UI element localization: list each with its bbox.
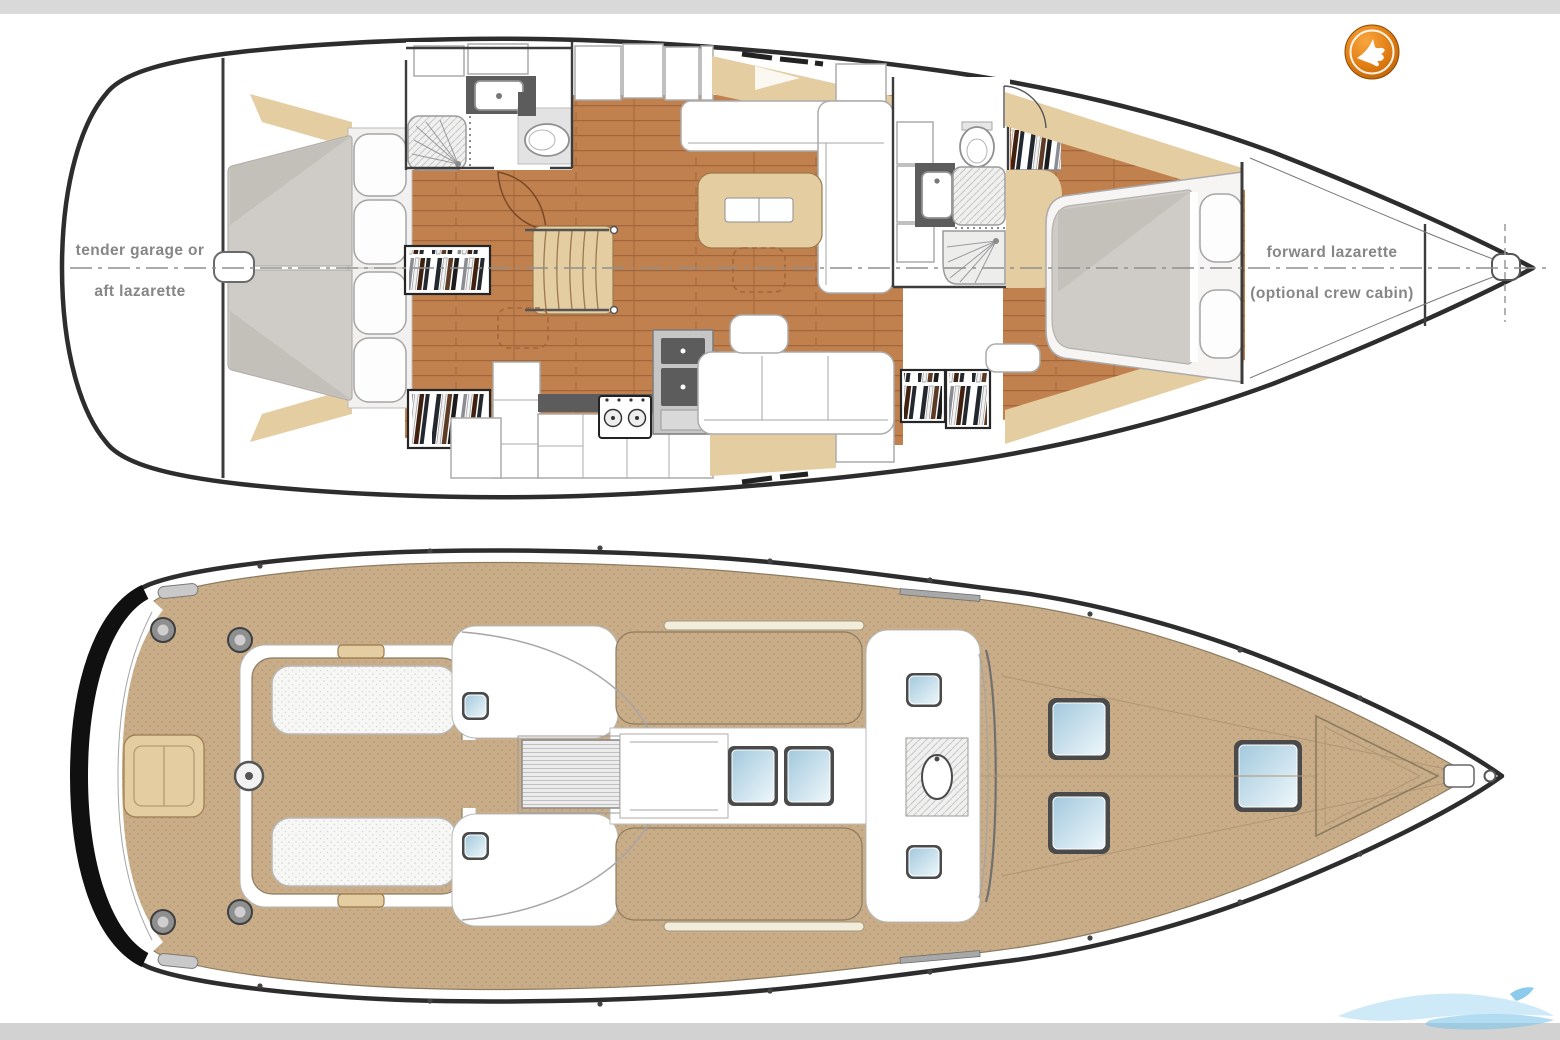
stool	[730, 315, 788, 353]
pillow	[354, 200, 406, 264]
forestay-fitting	[1485, 771, 1496, 782]
companionway-slide	[522, 740, 620, 808]
pillow	[354, 272, 406, 334]
hatch	[462, 832, 489, 860]
top-gray-bar	[0, 0, 1560, 14]
hatch	[462, 692, 489, 720]
bow-roller	[1444, 765, 1474, 787]
pillow	[1200, 194, 1242, 262]
yacht-layout-page: tender garage or aft lazarette forward l…	[0, 0, 1560, 1040]
hatch	[1048, 698, 1110, 760]
mast-windlass	[906, 738, 968, 816]
handrail	[664, 922, 864, 931]
pillow	[354, 338, 406, 402]
aft-lazarette-label-line1: tender garage or	[76, 242, 205, 259]
companionway-hatch	[620, 734, 728, 818]
hatch	[906, 673, 942, 707]
layout-drawing: tender garage or aft lazarette forward l…	[0, 0, 1560, 1040]
settee-side	[818, 101, 893, 293]
interior-plan: tender garage or aft lazarette forward l…	[62, 39, 1548, 498]
brand-logo	[1345, 25, 1399, 79]
aft-lazarette-label-line2: aft lazarette	[94, 283, 185, 300]
seat	[986, 344, 1040, 372]
forward-lazarette-label-line2: (optional crew cabin)	[1250, 285, 1413, 302]
forward-lazarette-label-line1: forward lazarette	[1267, 244, 1398, 261]
coachroof	[452, 621, 980, 931]
hatch	[1048, 792, 1110, 854]
bow-fitting	[1492, 254, 1520, 280]
pillow	[354, 134, 406, 196]
deck-plan	[76, 545, 1502, 1006]
skylight	[784, 746, 834, 806]
skylight	[728, 746, 778, 806]
cockpit-bench-port	[272, 666, 456, 734]
toilet	[960, 127, 994, 167]
hatch	[906, 845, 942, 879]
settee-bottom	[698, 352, 894, 434]
companionway-stairs	[525, 226, 618, 314]
toilet	[525, 124, 569, 156]
pillow	[1200, 290, 1242, 358]
cockpit-bench-starboard	[272, 818, 456, 886]
bottom-gray-bar	[0, 1023, 1560, 1040]
handrail	[664, 621, 864, 630]
pass-through	[214, 252, 254, 282]
